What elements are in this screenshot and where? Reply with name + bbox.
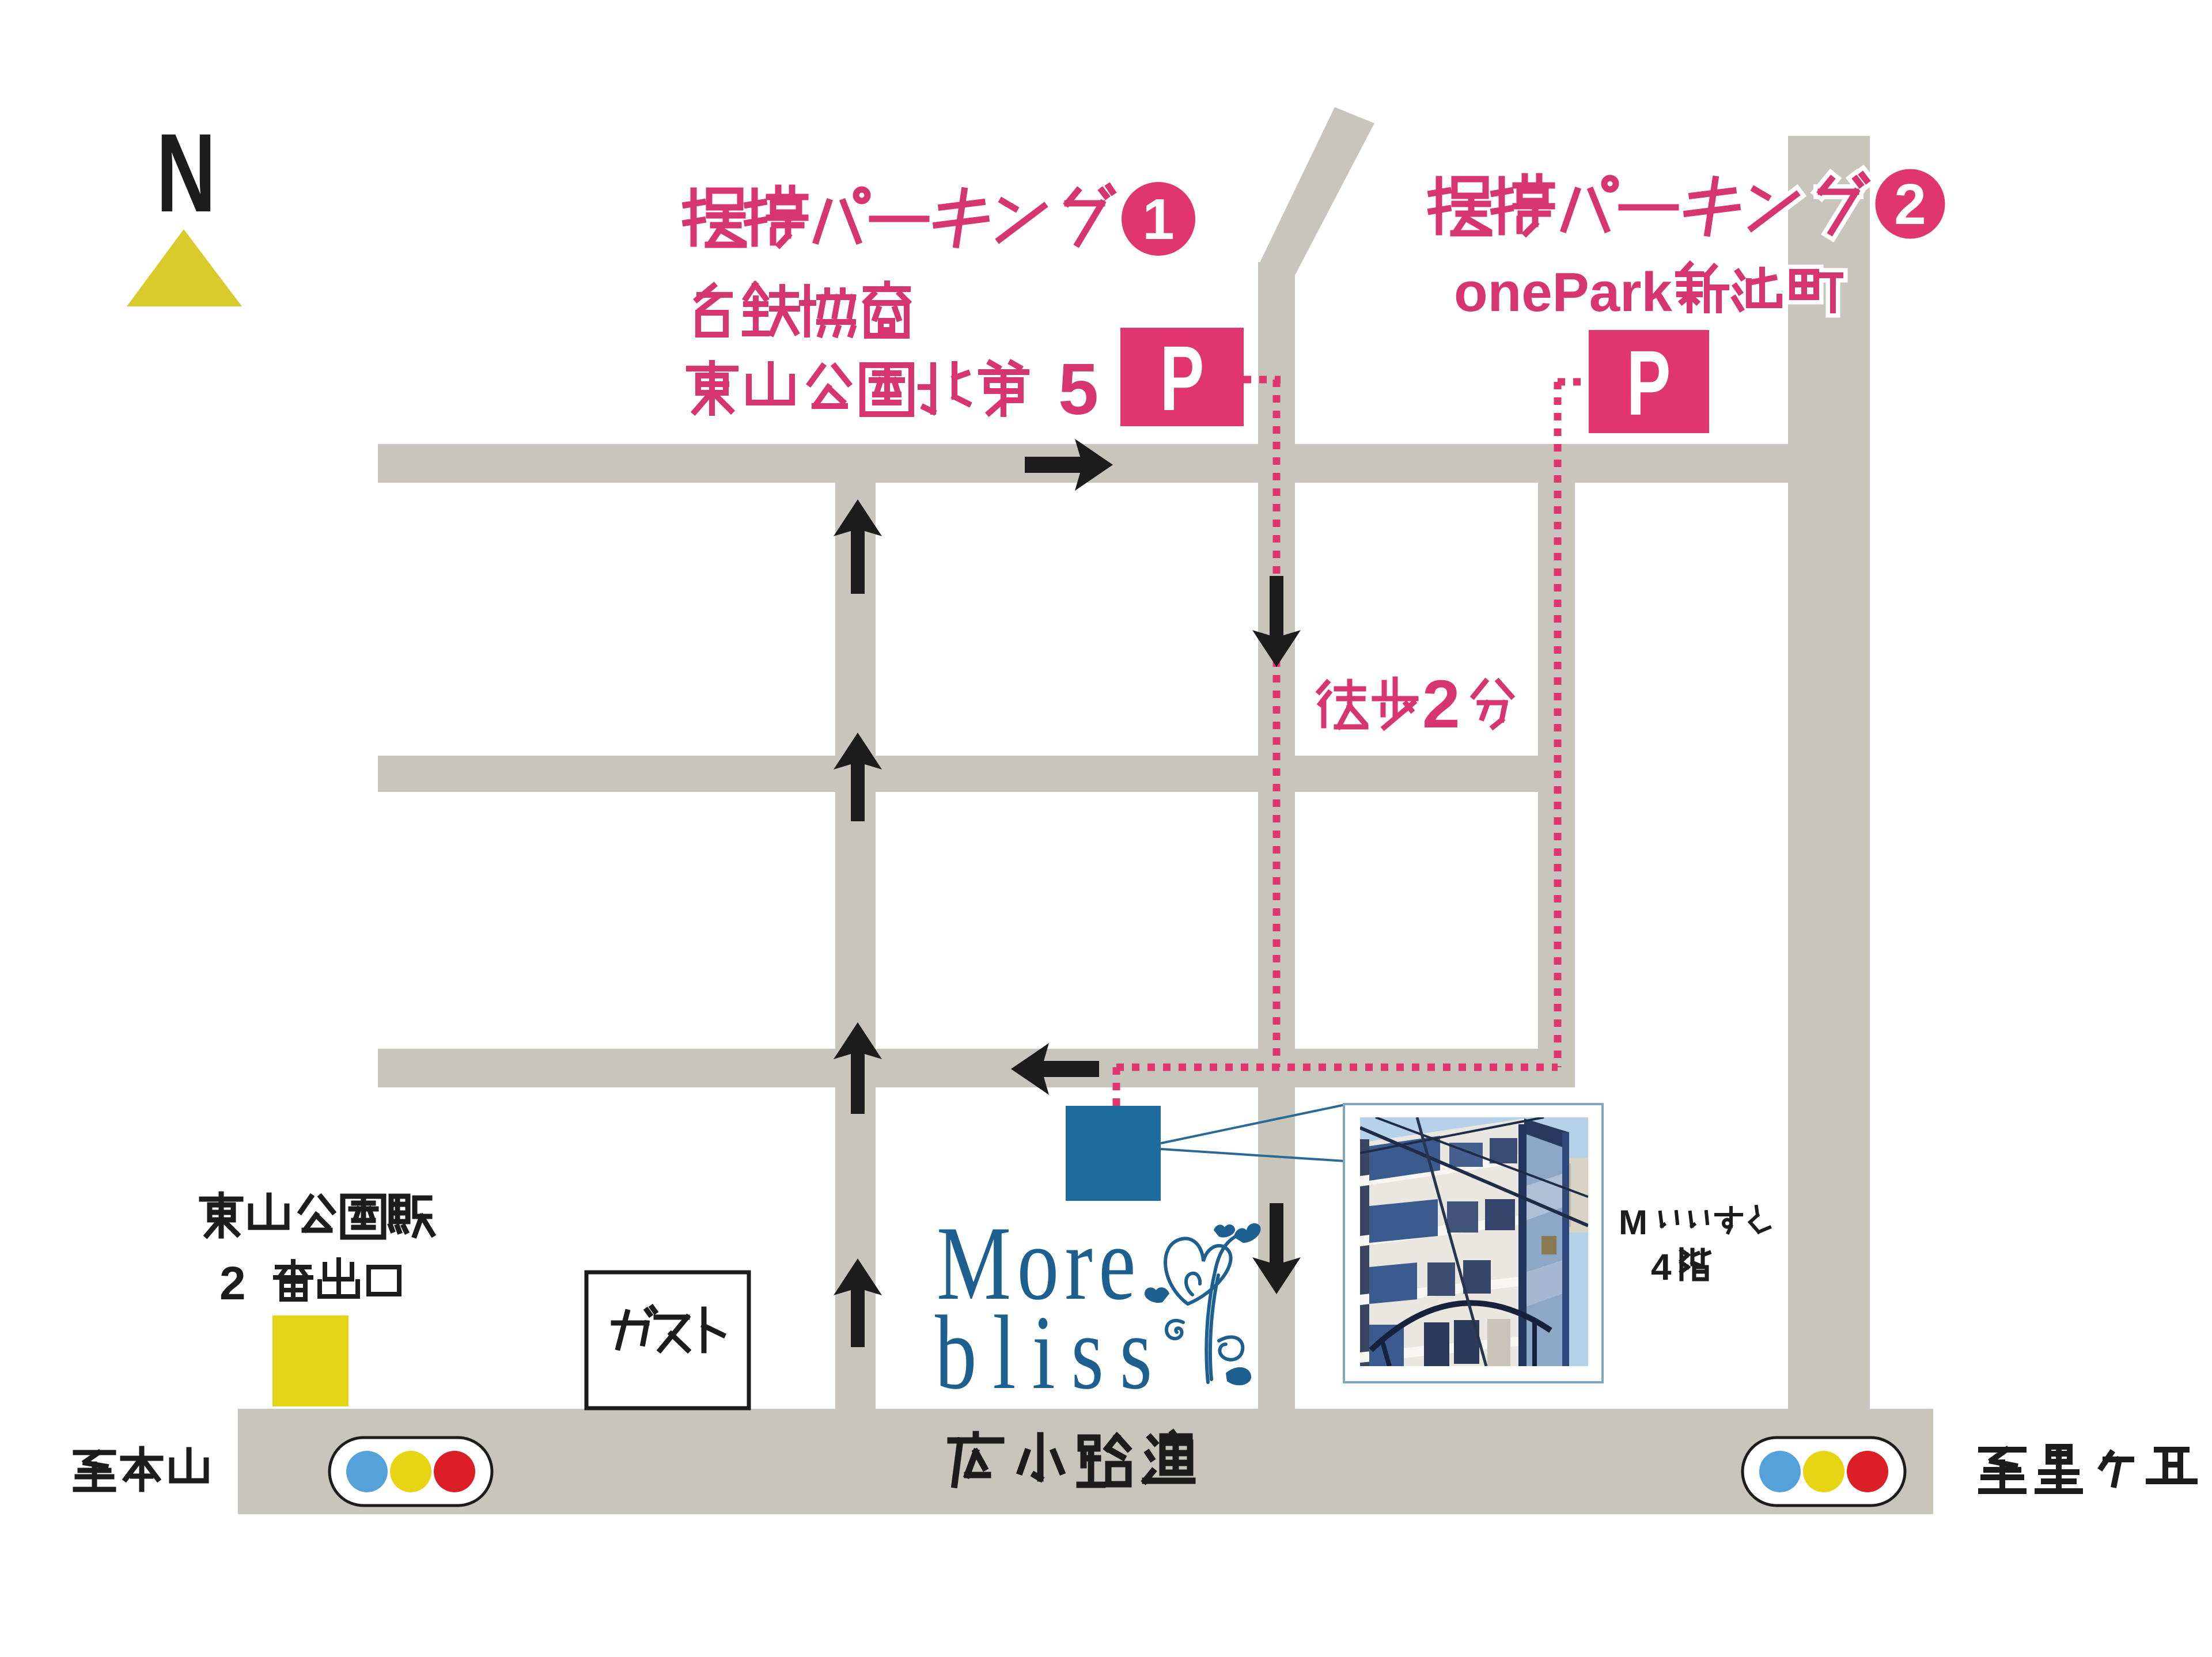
svg-text:P: P xyxy=(1627,331,1671,434)
svg-text:bliss: bliss xyxy=(935,1294,1168,1411)
svg-text:M: M xyxy=(1619,1203,1647,1242)
svg-text:5: 5 xyxy=(1058,348,1099,430)
svg-text:N: N xyxy=(156,111,216,236)
svg-text:2: 2 xyxy=(1894,172,1926,237)
svg-text:1: 1 xyxy=(1142,187,1175,252)
svg-text:P: P xyxy=(1160,327,1205,430)
svg-text:2: 2 xyxy=(219,1257,246,1310)
svg-text:onePark: onePark xyxy=(1454,261,1672,323)
svg-text:2: 2 xyxy=(1422,666,1460,742)
svg-text:4: 4 xyxy=(1651,1246,1672,1288)
